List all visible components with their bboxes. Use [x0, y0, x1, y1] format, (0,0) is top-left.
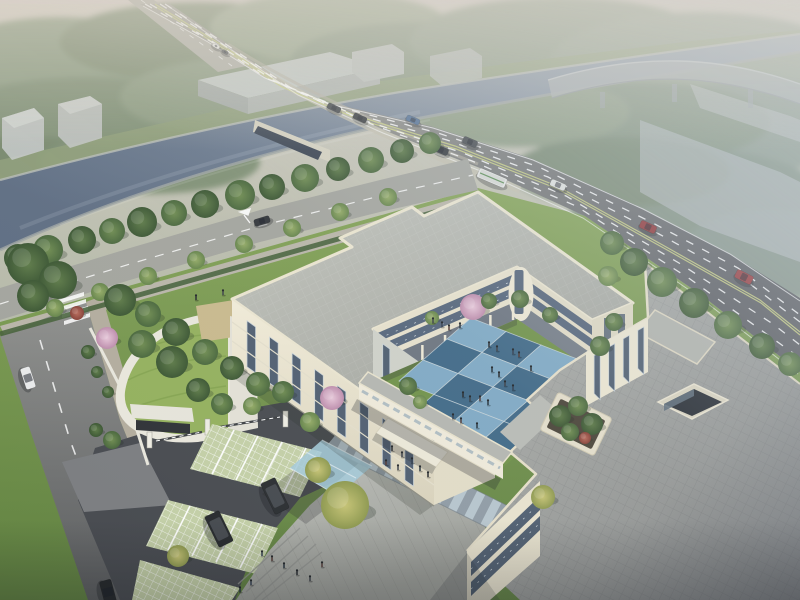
aerial-rendering-svg	[0, 0, 800, 600]
bottom-vignette	[0, 520, 800, 600]
rendering-canvas	[0, 0, 800, 600]
top-fog	[0, 0, 800, 150]
